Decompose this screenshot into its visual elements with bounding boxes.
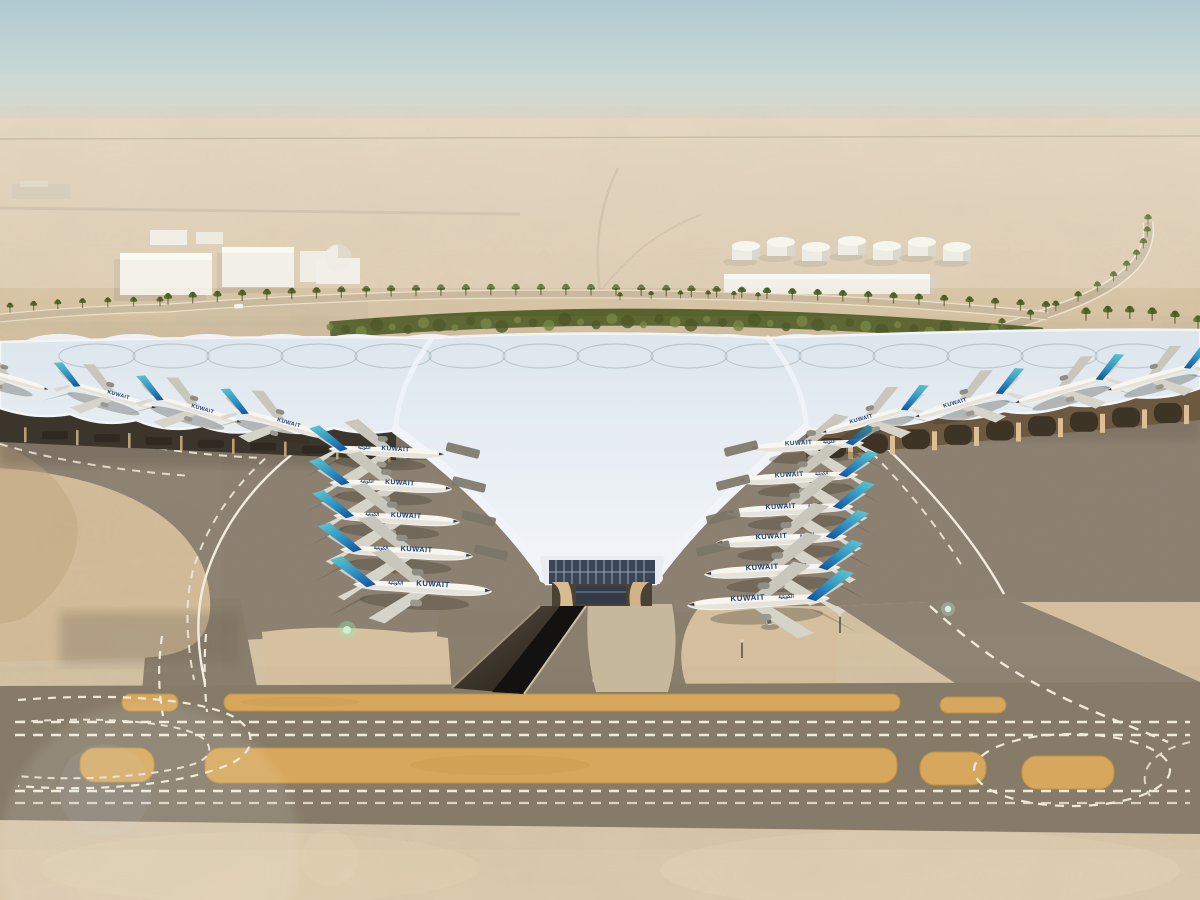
airport-rendering: KUWAITKUWAITKUWAITKUWAITالكويتيةKUWAITال… <box>0 0 1200 900</box>
kuwait-title: KUWAIT <box>755 531 787 542</box>
kuwait-title: KUWAIT <box>400 544 432 555</box>
kuwait-title: KUWAIT <box>745 562 778 573</box>
kuwait-title: KUWAIT <box>416 579 450 590</box>
kuwait-title: KUWAIT <box>730 593 765 604</box>
kuwait-title: KUWAIT <box>381 445 409 453</box>
kuwait-title-arabic: الكويتية <box>778 594 794 601</box>
car <box>234 304 243 309</box>
kuwait-title-arabic: الكويتية <box>388 580 404 587</box>
terminal-facade <box>540 556 664 606</box>
haze <box>0 118 1200 288</box>
plaza <box>587 604 675 692</box>
kuwait-title: KUWAIT <box>785 439 813 447</box>
